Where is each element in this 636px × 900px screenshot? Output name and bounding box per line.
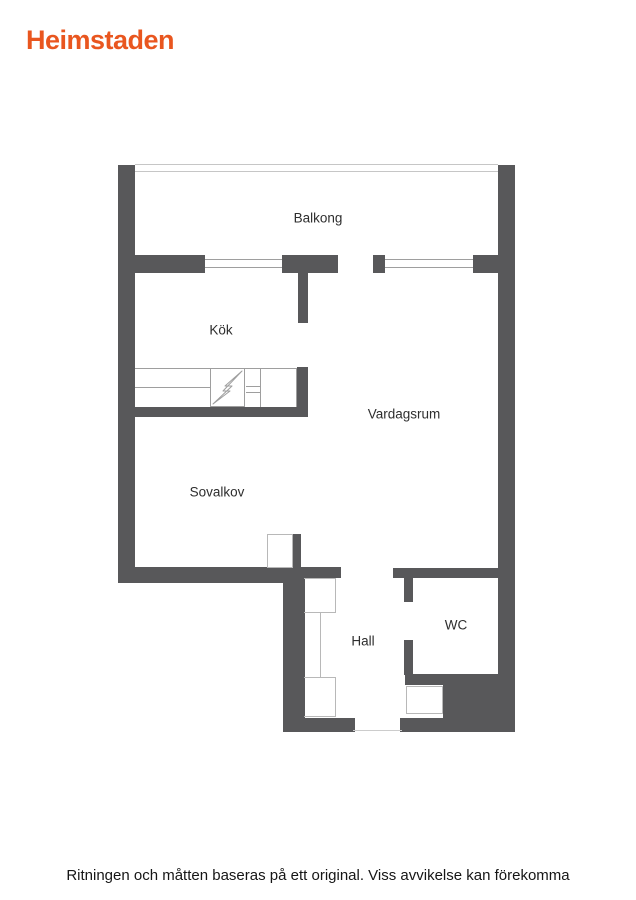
wall-left-exterior [118,165,135,583]
sink-line [246,392,260,393]
kitchen-counter-divider [260,368,261,407]
wc-door-jamb-lower [404,640,413,675]
hall-bottom-wall-left [283,718,355,732]
hall-wardrobe-lower [304,677,336,717]
balcony-wall-segment [473,255,498,273]
hall-top-wall [293,567,341,578]
floorplan-page: Heimstaden [0,0,636,900]
closet-sovalkov [267,534,293,568]
sovalkov-wall-bottom [118,567,293,583]
room-label-hall: Hall [351,634,374,649]
hall-bottom-wall-right [400,718,515,732]
disclaimer-text: Ritningen och måtten baseras på ett orig… [0,867,636,884]
kitchen-counter-divider [135,387,210,388]
room-label-kok: Kök [209,323,232,338]
hall-wardrobe-divider [320,613,321,678]
closet-entrance [406,686,443,714]
balcony-railing [135,164,498,172]
hall-wardrobe-upper [304,578,336,613]
wall-right-exterior [498,165,515,732]
wall-stub [293,534,301,567]
room-label-sovalkov: Sovalkov [190,485,245,500]
balcony-wall-segment [373,255,385,273]
room-label-vardagsrum: Vardagsrum [368,407,441,422]
kitchen-wall-bottom [133,407,303,417]
wc-door-jamb-upper [404,578,413,602]
lightning-bolt-icon [211,369,244,406]
sink-line [246,386,260,387]
window [205,255,282,273]
stove [210,368,245,407]
floor-plan: Balkong Kök Vardagsrum Sovalkov Hall WC [0,0,636,900]
wc-bottom-wall [405,674,498,685]
room-label-balkong: Balkong [294,211,343,226]
room-label-wc: WC [445,618,468,633]
corner-wall-block [443,685,515,718]
window [385,255,473,273]
wc-top-wall [393,568,498,578]
entrance-threshold [353,730,402,731]
balcony-wall-segment [282,255,338,273]
balcony-wall-segment [135,255,205,273]
hall-left-wall [283,578,305,732]
kitchen-partition-upper [298,273,308,323]
